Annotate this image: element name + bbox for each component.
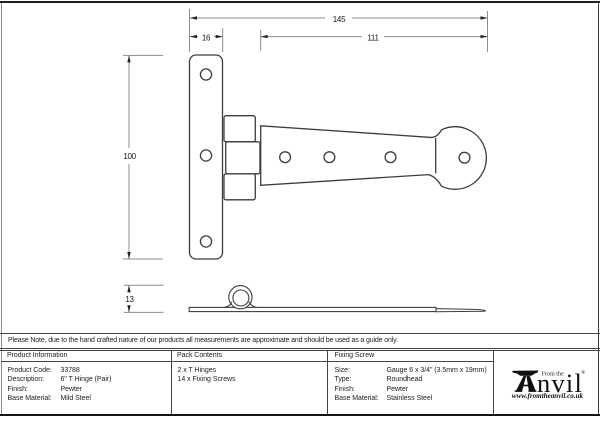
svg-text:www.fromtheanvil.co.uk: www.fromtheanvil.co.uk: [512, 392, 584, 400]
svg-text:16: 16: [202, 33, 211, 42]
svg-text:100: 100: [123, 152, 136, 161]
svg-text:13: 13: [125, 295, 134, 304]
svg-text:111: 111: [367, 33, 379, 42]
svg-text:From the: From the: [542, 371, 564, 377]
svg-text:®: ®: [581, 369, 585, 376]
svg-text:145: 145: [333, 15, 346, 24]
